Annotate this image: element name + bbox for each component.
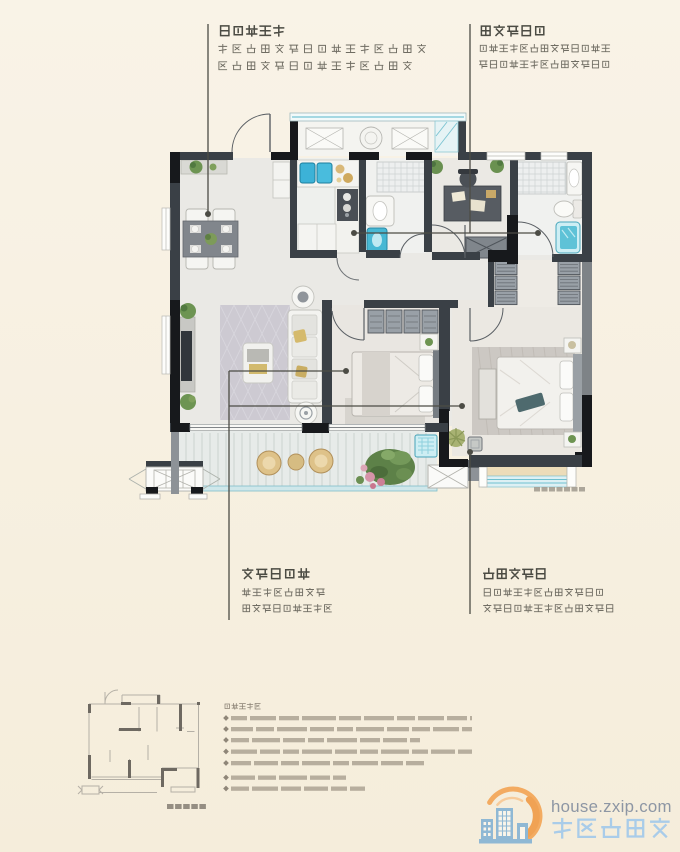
svg-text:house.zxip.com: house.zxip.com bbox=[551, 797, 672, 816]
